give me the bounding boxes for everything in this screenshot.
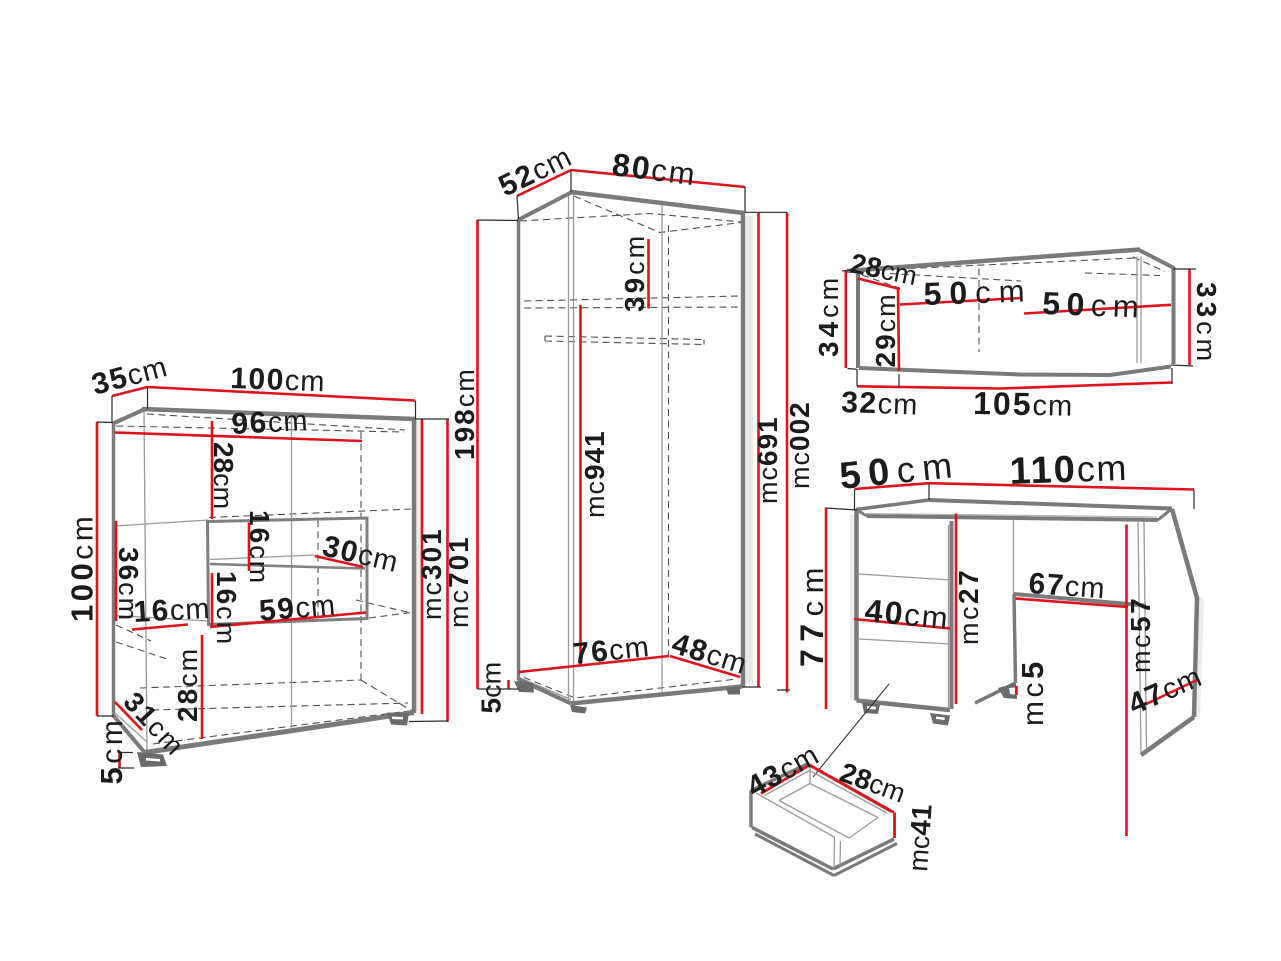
svg-text:32cm: 32cm [841, 386, 919, 422]
svg-text:34cm: 34cm [813, 274, 844, 357]
svg-text:39cm: 39cm [619, 233, 650, 312]
svg-text:5cm: 5cm [94, 717, 129, 785]
svg-text:50cm: 50cm [923, 272, 1033, 312]
svg-text:198cm: 198cm [449, 367, 480, 460]
svg-text:77cm: 77cm [794, 560, 830, 667]
svg-text:100cm: 100cm [65, 513, 100, 622]
svg-text:100cm: 100cm [230, 362, 326, 398]
svg-text:mc002: mc002 [784, 401, 815, 489]
svg-text:16cm: 16cm [211, 571, 242, 646]
svg-text:110cm: 110cm [1009, 447, 1129, 493]
svg-text:28cm: 28cm [208, 442, 239, 509]
svg-text:28cm: 28cm [172, 647, 203, 722]
svg-text:mc701: mc701 [443, 535, 474, 628]
svg-text:59cm: 59cm [258, 588, 338, 628]
svg-text:5cm: 5cm [476, 662, 507, 714]
svg-text:mc27: mc27 [953, 568, 984, 645]
svg-text:67cm: 67cm [1028, 567, 1107, 605]
svg-text:mc5: mc5 [1015, 658, 1050, 726]
svg-text:mc691: mc691 [752, 416, 783, 504]
svg-text:16cm: 16cm [244, 510, 275, 585]
svg-text:96cm: 96cm [231, 404, 310, 441]
svg-text:mc57: mc57 [1125, 596, 1156, 673]
svg-text:29cm: 29cm [870, 292, 901, 367]
svg-text:16cm: 16cm [133, 592, 212, 629]
svg-text:50cm: 50cm [1042, 285, 1146, 325]
svg-text:mc941: mc941 [579, 430, 610, 518]
svg-text:33cm: 33cm [1191, 282, 1222, 365]
svg-text:mc41: mc41 [902, 803, 938, 872]
svg-text:105cm: 105cm [973, 385, 1074, 423]
